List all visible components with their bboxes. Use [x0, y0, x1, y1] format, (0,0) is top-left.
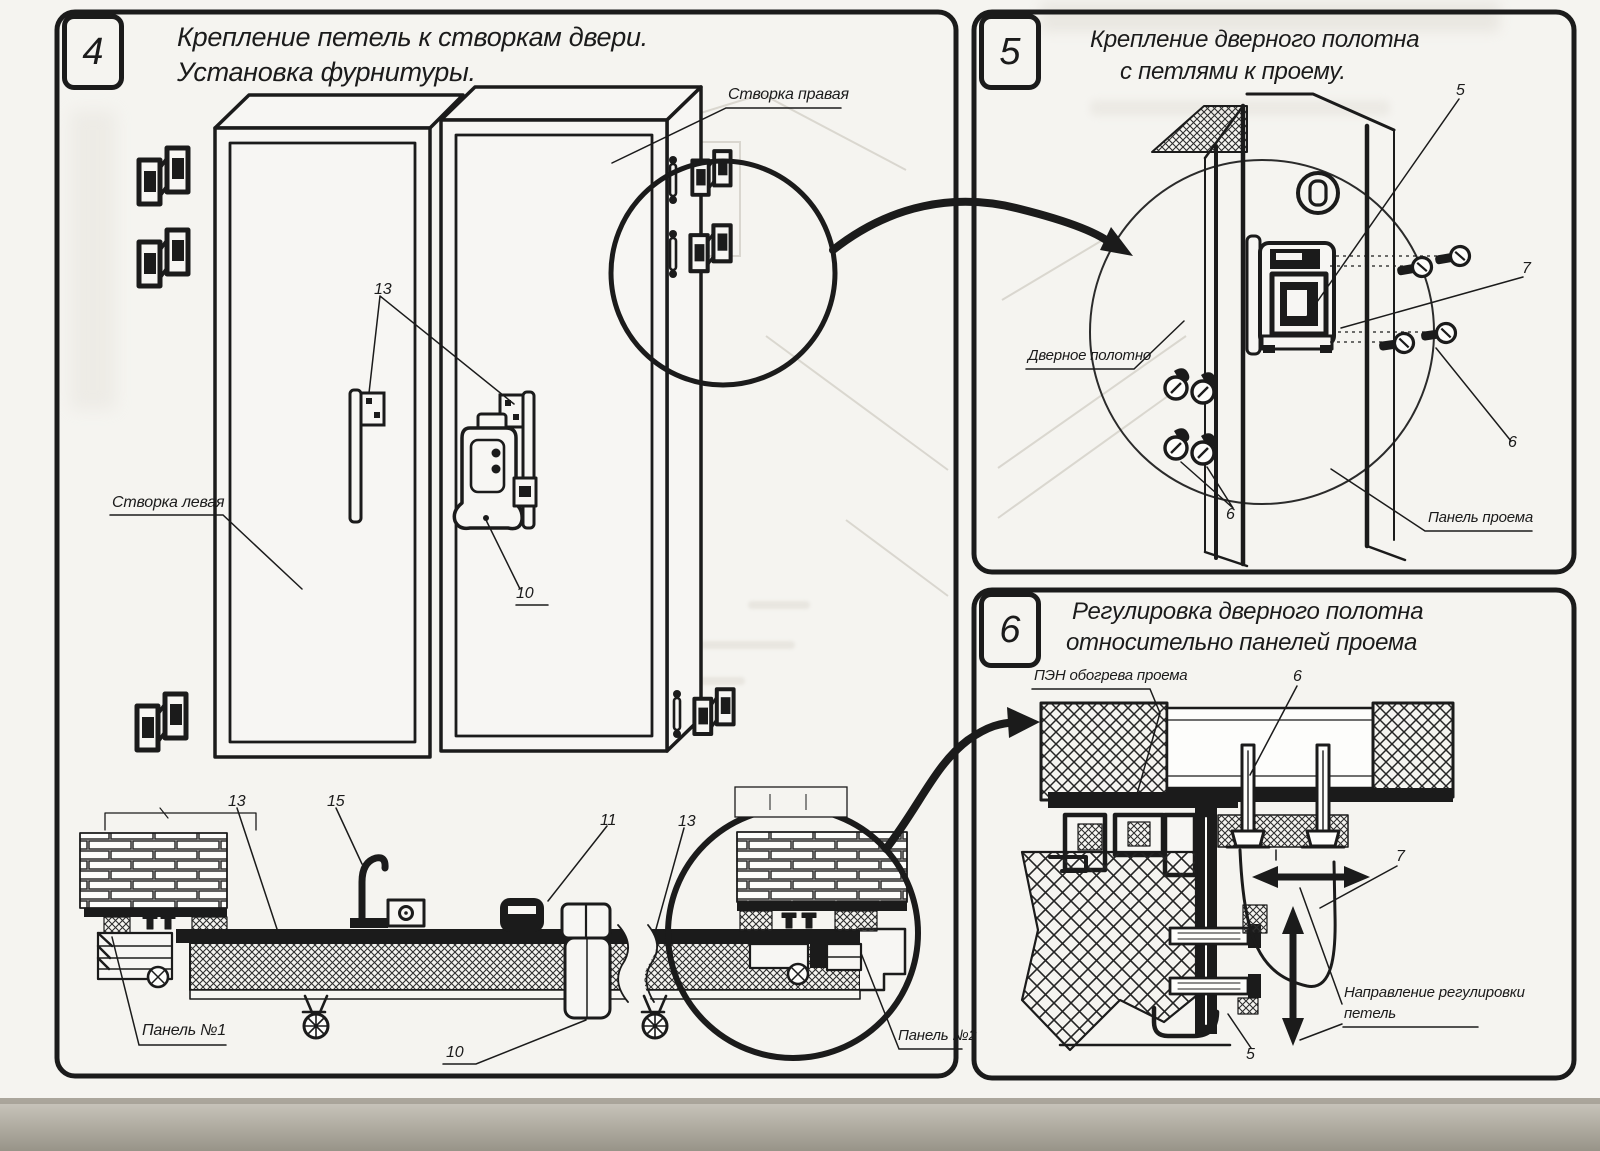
- technical-drawing: [0, 0, 1600, 1151]
- callout-13-section-left: 13: [228, 793, 245, 811]
- callout-6-p6: 6: [1293, 668, 1302, 686]
- instruction-sheet-page: 4 5 6 Крепление петель к створкам двери.…: [0, 0, 1600, 1151]
- label-panel-n1: Панель №1: [142, 1022, 226, 1040]
- panel-5-title-line-1: Крепление дверного полотна: [1090, 26, 1419, 54]
- panel-5-title-line-2: с петлями к проему.: [1120, 58, 1346, 86]
- callout-10-section: 10: [446, 1044, 463, 1062]
- callout-11-section: 11: [600, 812, 616, 830]
- panel-4-number: 4: [62, 14, 124, 90]
- dimension-box: [735, 787, 847, 817]
- label-dvernoe-polotno: Дверное полотно: [1028, 347, 1151, 364]
- callout-7-p5: 7: [1522, 260, 1531, 278]
- label-panel-proema: Панель проема: [1428, 509, 1533, 526]
- callout-15-section: 15: [327, 793, 344, 811]
- panel-6-number: 6: [979, 592, 1041, 668]
- callout-5-p6: 5: [1246, 1046, 1255, 1064]
- label-panel-n2: Панель №2: [898, 1027, 977, 1044]
- panel-6-title-line-1: Регулировка дверного полотна: [1072, 598, 1423, 626]
- panel5-hinge: [1247, 236, 1334, 354]
- panel4-cross-section: [80, 808, 907, 1038]
- panel-4-title-line-2: Установка фурнитуры.: [177, 57, 476, 88]
- panel4-door-leaves: [215, 87, 701, 757]
- bleedthrough-ghost-lines: [300, 94, 1186, 712]
- callout-13-doors: 13: [374, 281, 391, 299]
- label-stvorka-pravaya: Створка правая: [728, 86, 849, 104]
- callout-7-p6: 7: [1396, 848, 1405, 866]
- callout-10-lock: 10: [516, 585, 533, 603]
- callout-6-p5-left: 6: [1226, 506, 1235, 524]
- panel-6-title-line-2: относительно панелей проема: [1066, 629, 1417, 657]
- label-stvorka-levaya: Створка левая: [112, 494, 224, 512]
- callout-5-p5: 5: [1456, 82, 1465, 100]
- label-pen-obogreva: ПЭН обогрева проема: [1034, 667, 1187, 684]
- panel-5-number: 5: [979, 14, 1041, 90]
- flow-arrow-to-panel6: [886, 707, 1040, 849]
- label-napravlenie-1: Направление регулировки: [1344, 984, 1525, 1001]
- label-napravlenie-2: петель: [1344, 1005, 1396, 1022]
- callout-13-section-right: 13: [678, 813, 695, 831]
- callout-6-p5-right: 6: [1508, 434, 1517, 452]
- panel-4-title-line-1: Крепление петель к створкам двери.: [177, 22, 648, 53]
